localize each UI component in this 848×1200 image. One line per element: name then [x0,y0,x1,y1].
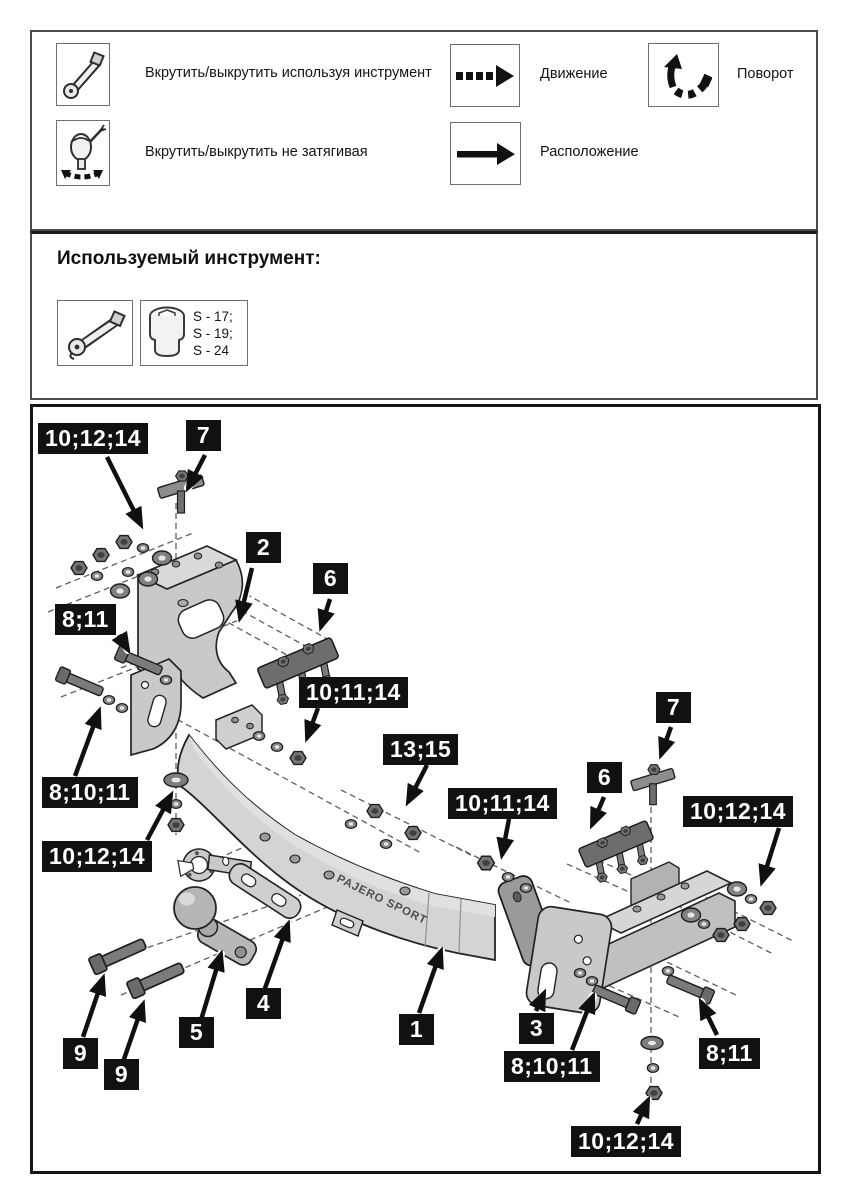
callout-part-2: 2 [246,532,281,563]
exploded-diagram-section: PAJERO SPORT [30,404,821,1174]
callout-10-12-14-left: 10;12;14 [42,841,152,872]
callout-part-7-right: 7 [656,692,691,723]
callout-bolts-8-11-left: 8;11 [55,604,116,635]
callout-10-12-14-right: 10;12;14 [683,796,793,827]
callout-part-6-right: 6 [587,762,622,793]
solid-arrow-icon [450,122,521,185]
callout-8-10-11-bottom: 8;10;11 [504,1051,600,1082]
callout-part-5: 5 [179,1017,214,1048]
callout-hardware-topleft: 10;12;14 [38,423,148,454]
callout-part-4: 4 [246,988,281,1019]
socket-size-24: S - 24 [193,342,233,359]
socket-size-19: S - 19; [193,325,233,342]
socket-sizes: S - 17; S - 19; S - 24 [193,308,233,359]
legend-label-hand: Вкрутить/выкрутить не затягивая [145,144,368,160]
socket-tool-box: S - 17; S - 19; S - 24 [140,300,248,366]
ratchet-wrench-icon [56,43,110,106]
dashed-arrow-icon [450,44,520,107]
part-tbolt-right [630,765,675,805]
callout-part-6-top: 6 [313,563,348,594]
socket-icon [146,306,190,360]
callout-10-11-14-right: 10;11;14 [448,788,557,819]
callout-8-11-right: 8;11 [699,1038,760,1069]
callout-8-10-11-left: 8;10;11 [42,777,138,808]
callout-10-11-14-center: 10;11;14 [299,677,408,708]
tools-section: Используемый инструмент: S - 17; S - 19;… [30,231,818,400]
legend-label-move: Движение [540,66,608,82]
callout-part-7-left: 7 [186,420,221,451]
callout-part-1: 1 [399,1014,434,1045]
callout-bolt-9-a: 9 [63,1038,98,1069]
ratchet-tool-icon [57,300,133,366]
callout-13-15: 13;15 [383,734,458,765]
legend-label-place: Расположение [540,144,639,160]
legend-label-tool: Вкрутить/выкрутить используя инструмент [145,65,432,81]
socket-size-17: S - 17; [193,308,233,325]
hand-tighten-icon [56,120,110,186]
callout-10-12-14-bottom: 10;12;14 [571,1126,681,1157]
callout-part-3: 3 [519,1013,554,1044]
legend-label-rotate: Поворот [737,66,794,82]
rotate-arrow-icon [648,43,719,107]
towbar-instruction-sheet: Вкрутить/выкрутить используя инструмент … [0,0,848,1200]
tools-heading: Используемый инструмент: [57,248,321,270]
callout-bolt-9-b: 9 [104,1059,139,1090]
legend-section: Вкрутить/выкрутить используя инструмент … [30,30,818,231]
